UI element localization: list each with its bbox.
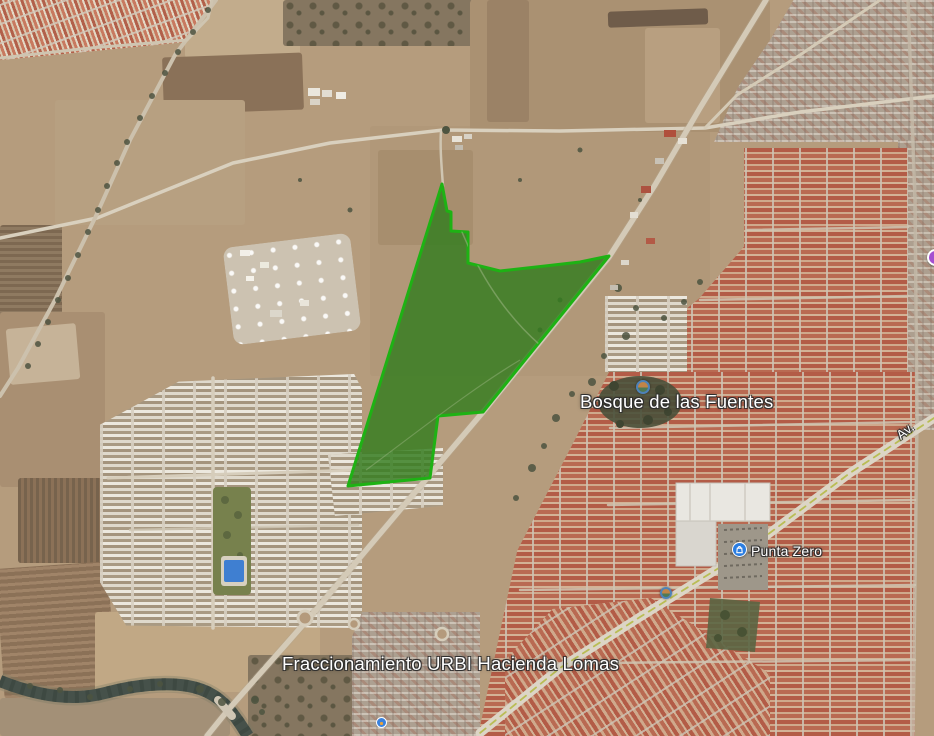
highlighted-parcel-overlay[interactable] xyxy=(348,184,612,486)
map-overlay-graphics xyxy=(0,0,934,736)
map-label-neighborhood: Bosque de las Fuentes xyxy=(580,391,773,413)
tree-block xyxy=(706,598,760,652)
photo-attraction-icon[interactable] xyxy=(636,380,650,394)
map-label-store: Punta Zero xyxy=(751,543,822,559)
small-poi-icon[interactable] xyxy=(376,717,387,728)
photo-attraction-icon[interactable] xyxy=(660,587,672,599)
avenue-road xyxy=(480,418,934,733)
roadside-trees xyxy=(25,7,211,369)
map-label-development: Fraccionamiento URBI Hacienda Lomas xyxy=(282,653,619,675)
roundabouts xyxy=(298,611,448,640)
satellite-map-canvas[interactable]: Bosque de las Fuentes Punta Zero Fraccio… xyxy=(0,0,934,736)
swimming-pool xyxy=(221,556,247,586)
shopping-poi-icon[interactable] xyxy=(732,542,747,557)
shopping-center-building xyxy=(676,483,770,590)
